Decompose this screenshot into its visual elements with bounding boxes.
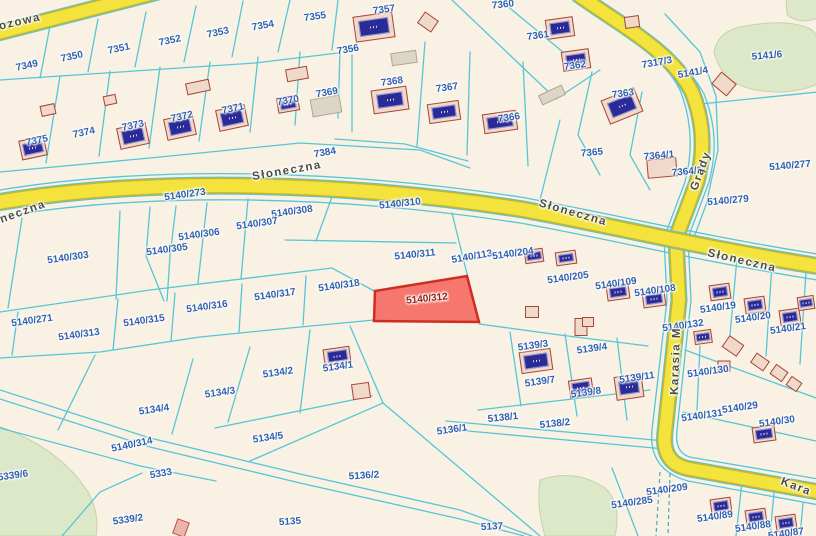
parcel-label: 7365 bbox=[580, 147, 603, 160]
building bbox=[582, 317, 594, 327]
parcel-label: 5135 bbox=[279, 516, 302, 529]
building-number-chip bbox=[696, 332, 711, 343]
building-number-chip bbox=[755, 428, 773, 440]
cadastral-map[interactable]: 7349735073517352735373547355735773607375… bbox=[0, 0, 816, 536]
map-geometry-layer bbox=[0, 0, 816, 536]
building bbox=[525, 306, 539, 318]
building-number-chip bbox=[523, 353, 548, 370]
building-number-chip bbox=[558, 252, 575, 263]
parcel-label: 5136/2 bbox=[348, 469, 379, 482]
green-area-south bbox=[539, 476, 617, 536]
building-number-chip bbox=[799, 298, 813, 309]
building-number-chip bbox=[431, 104, 456, 120]
dashed-path bbox=[656, 472, 670, 536]
building-with-number bbox=[693, 329, 713, 345]
street-label: Karasia M bbox=[669, 327, 683, 395]
building bbox=[351, 382, 371, 400]
building bbox=[624, 15, 641, 29]
building-with-number bbox=[797, 295, 816, 311]
building-number-chip bbox=[549, 20, 571, 35]
building-number-chip bbox=[747, 299, 764, 311]
building-with-number bbox=[555, 250, 578, 267]
building-with-number bbox=[708, 283, 731, 302]
building-number-chip bbox=[376, 91, 404, 109]
building-number-chip bbox=[358, 17, 389, 37]
parcel-label: 5137 bbox=[481, 521, 504, 533]
green-area-corner bbox=[786, 0, 816, 21]
building-number-chip bbox=[712, 286, 729, 298]
building-with-number bbox=[371, 86, 410, 115]
